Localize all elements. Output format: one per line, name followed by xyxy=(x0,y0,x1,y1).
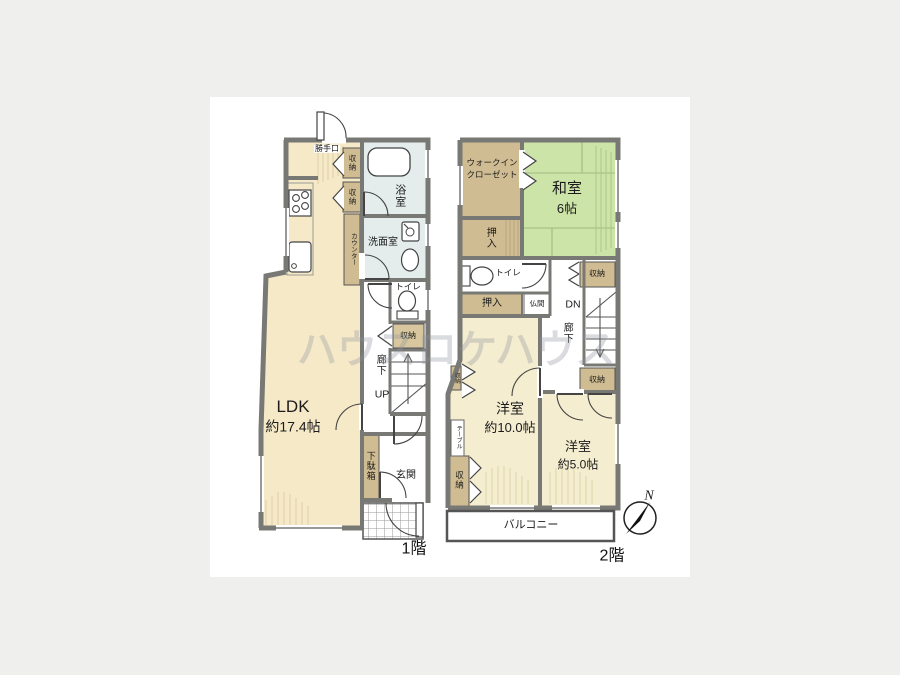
dn-label: DN xyxy=(565,299,580,310)
back-door xyxy=(317,112,346,140)
floorplan-page: 勝手口 収納 収納 カウンター 浴室 洗面室 トイレ 収納 廊下 UP LDK … xyxy=(0,0,900,675)
compass-north-label: N xyxy=(644,490,653,505)
oshiire-mid-label: 押入 xyxy=(482,299,502,310)
floor2-title: 2階 xyxy=(600,549,625,566)
butsuma-label: 仏間 xyxy=(530,300,545,308)
washbasin-icon xyxy=(402,222,419,241)
kitchen-sink-icon xyxy=(289,242,311,272)
counter-label: カウンター xyxy=(349,233,356,266)
washroom-label: 洗面室 xyxy=(368,238,398,249)
hall-storage-bifold xyxy=(378,326,392,346)
storage-hall-label: 収納 xyxy=(400,332,416,340)
compass xyxy=(624,502,656,534)
yoshitsu10-name-label: 洋室 xyxy=(496,402,524,417)
table-label: テーブル xyxy=(455,425,461,449)
laundry-icon xyxy=(402,249,419,271)
storage-e-label: 収納 xyxy=(589,376,605,384)
washitsu-size-label: 6帖 xyxy=(557,202,577,216)
wic-label-line2: クローゼット xyxy=(466,171,517,180)
bath-label: 浴室 xyxy=(393,184,405,208)
washitsu-name-label: 和室 xyxy=(552,181,582,197)
yoshitsu5-name-label: 洋室 xyxy=(565,440,591,454)
ldk-name-label: LDK xyxy=(276,398,309,416)
floorplan-drawing xyxy=(0,0,900,675)
bathtub-icon xyxy=(368,148,410,176)
storage-ne-label: 収納 xyxy=(589,270,605,278)
floor1-title: 1階 xyxy=(402,542,427,559)
ldk-size-label: 約17.4帖 xyxy=(265,420,320,435)
toilet-1f-label: トイレ xyxy=(395,283,421,292)
storage-diag-label: 収納 xyxy=(453,373,459,384)
toilet-2f-label: トイレ xyxy=(495,269,521,278)
toilet-2f-icon xyxy=(462,266,493,286)
entrance-label: 玄関 xyxy=(396,471,416,482)
balcony-label: バルコニー xyxy=(504,520,559,532)
hallway-2f-label: 廊下 xyxy=(561,322,572,344)
yoshitsu10-size-label: 約10.0帖 xyxy=(484,421,535,435)
storage-b-label: 収納 xyxy=(348,189,356,206)
toilet-1f-icon xyxy=(397,291,418,319)
toilet-2f-door xyxy=(522,264,546,288)
storage-sw-label: 収納 xyxy=(455,471,464,490)
oshiire-top-label: 押入 xyxy=(484,227,495,249)
washitsu-floor xyxy=(522,142,618,258)
hallway-1f-label: 廊下 xyxy=(374,354,385,376)
stairs-1f xyxy=(390,350,428,414)
shoe-cabinet-label: 下駄箱 xyxy=(365,451,374,481)
stairs-2f xyxy=(586,290,616,365)
storage-a-label: 収納 xyxy=(348,155,356,172)
understairs-door xyxy=(394,416,422,444)
stove-icon xyxy=(289,190,311,216)
up-label: UP xyxy=(375,389,390,400)
katteguchi-label: 勝手口 xyxy=(314,145,340,153)
yoshitsu5-size-label: 約5.0帖 xyxy=(558,459,599,472)
storage-ne-bifold xyxy=(569,262,579,286)
toilet-1f-door xyxy=(368,284,392,308)
wic-label-line1: ウォークイン xyxy=(466,159,517,168)
porch-tile xyxy=(363,503,423,539)
wic-floor xyxy=(462,142,522,218)
